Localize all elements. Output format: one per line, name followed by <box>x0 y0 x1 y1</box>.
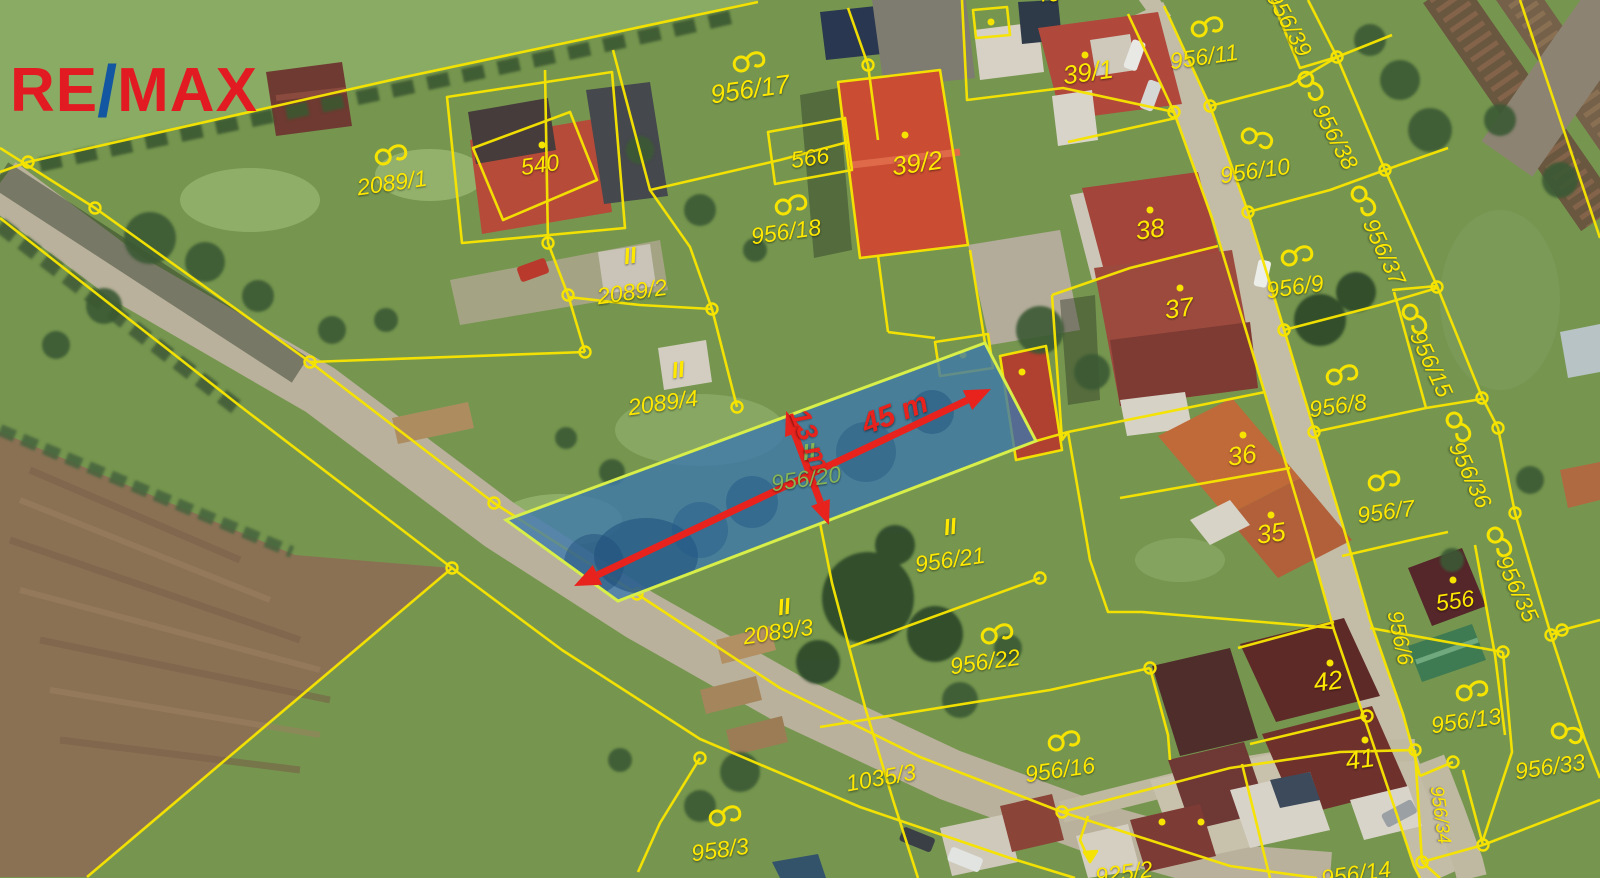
aerial-map-canvas <box>0 0 1600 878</box>
cadastral-map-screenshot: 2089/1540956/1756639/2956/184039/1956/11… <box>0 0 1600 878</box>
logo-max: MAX <box>117 56 258 125</box>
logo-slash-icon: / <box>97 52 118 132</box>
remax-logo: RE/MAX <box>10 56 258 128</box>
logo-re: RE <box>10 56 98 125</box>
